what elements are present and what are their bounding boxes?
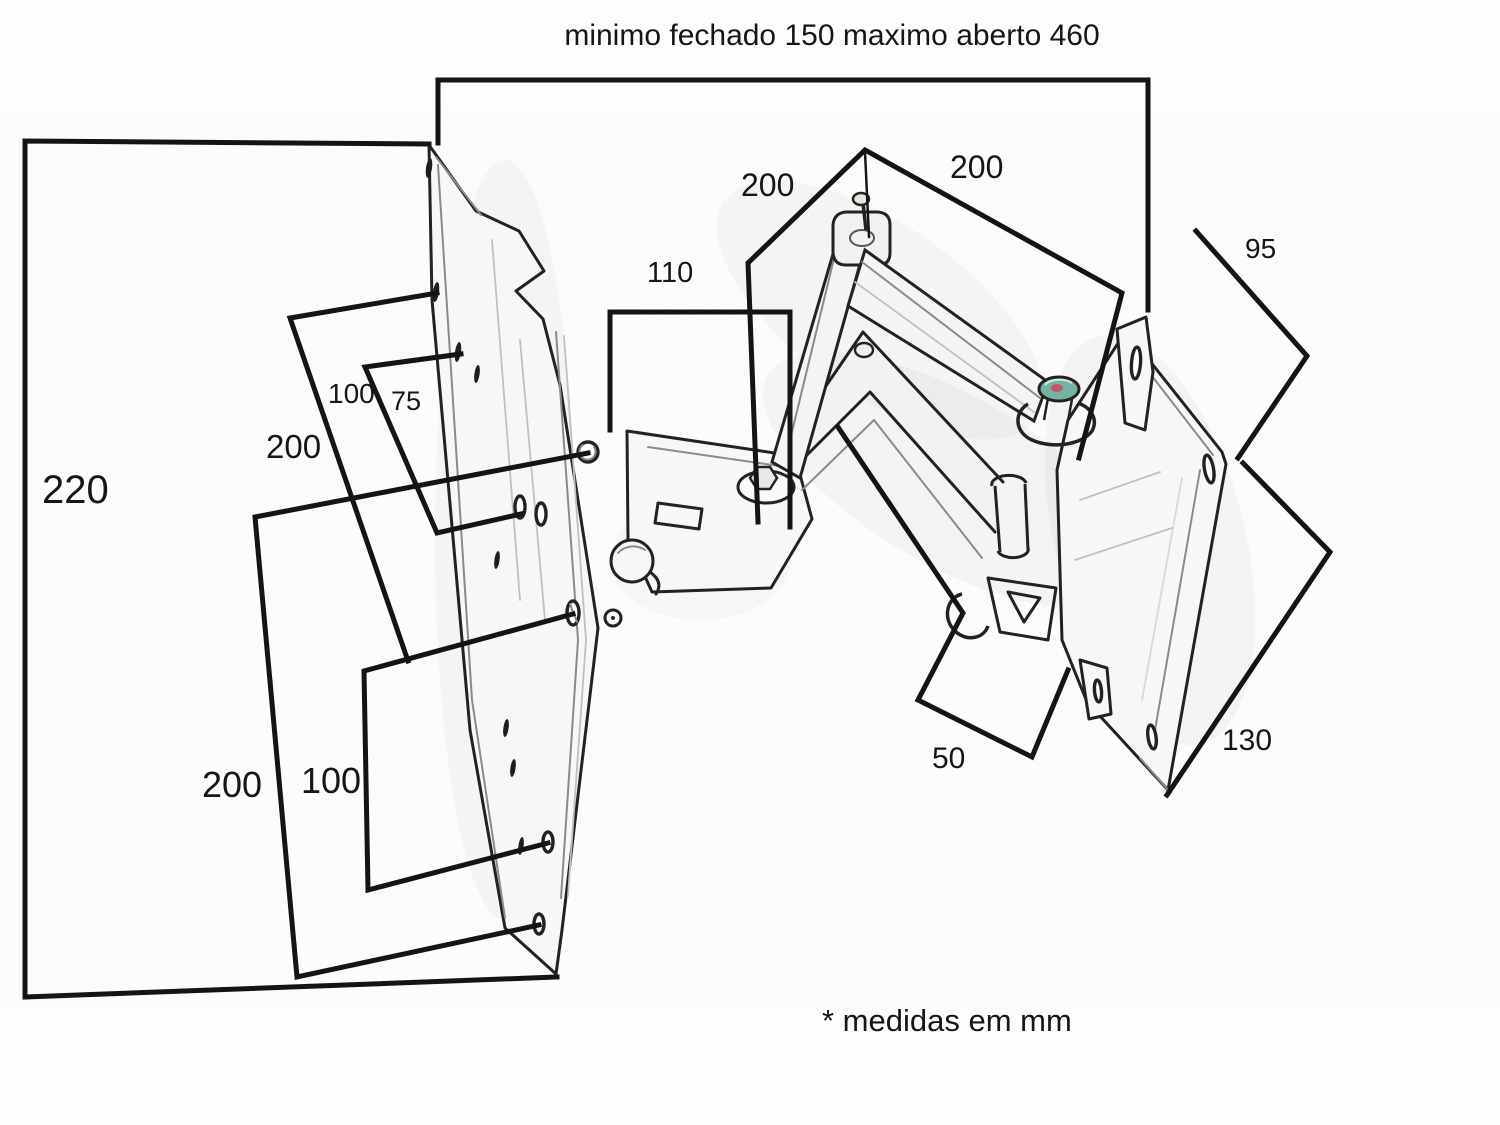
dim-50-label: 50 — [932, 742, 965, 775]
dim-200-upper-label: 200 — [266, 428, 321, 465]
dim-200-lower: 200 — [202, 764, 262, 805]
diagram-page: minimo fechado 150 maximo aberto 460 220… — [0, 0, 1500, 1125]
dim-arm-200-right: 200 — [950, 149, 1003, 185]
dim-220-label: 220 — [42, 468, 109, 512]
dim-75-label: 75 — [391, 386, 421, 416]
dim-130-label: 130 — [1222, 724, 1272, 757]
dim-95-label: 95 — [1245, 233, 1276, 264]
units-note: * medidas em mm — [822, 1003, 1072, 1038]
dim-min-max-label: minimo fechado 150 maximo aberto 460 — [564, 19, 1099, 52]
dim-100-lower-label: 100 — [301, 760, 361, 801]
dim-arm-200-left-label: 200 — [741, 167, 794, 203]
dim-100-upper-label: 100 — [328, 378, 375, 409]
tv-mount-dimension-diagram: minimo fechado 150 maximo aberto 460 220… — [0, 0, 1500, 1125]
red-bolt-mark — [1051, 384, 1063, 392]
dim-110-label: 110 — [647, 257, 693, 289]
dim-arm-200-right-label: 200 — [950, 149, 1003, 185]
units-note-label: * medidas em mm — [822, 1003, 1072, 1038]
dim-200-lower-label: 200 — [202, 764, 262, 805]
